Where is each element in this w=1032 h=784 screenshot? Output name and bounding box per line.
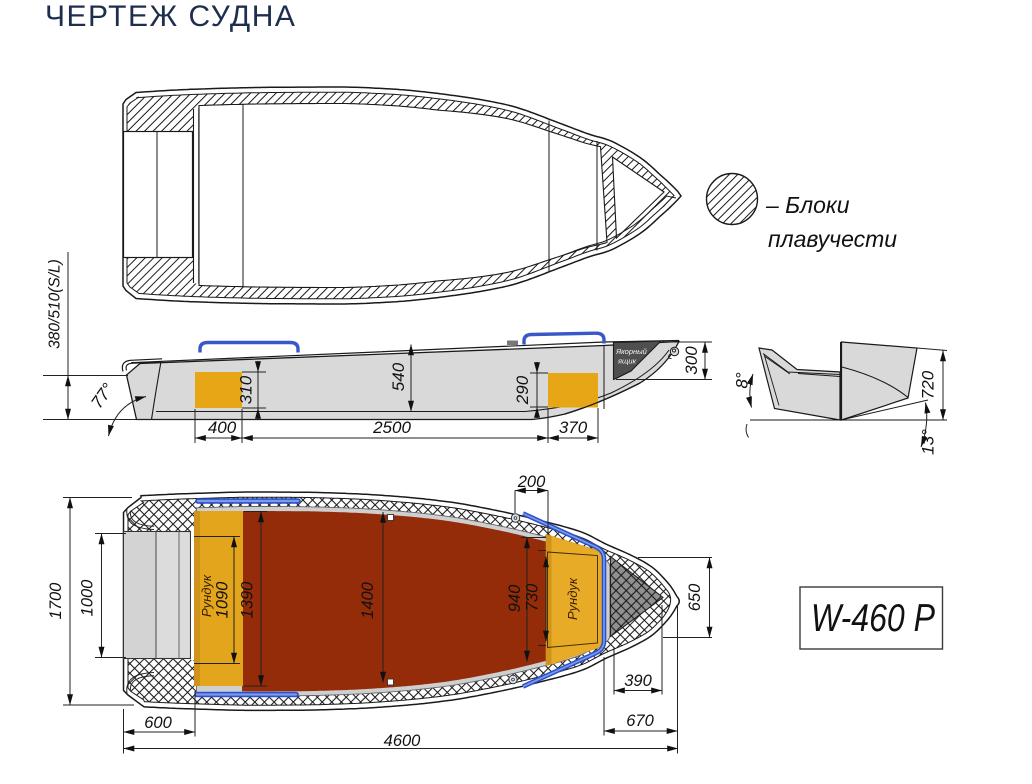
svg-text:4600: 4600 [384,732,422,750]
svg-text:290: 290 [513,375,532,405]
svg-text:77°: 77° [87,380,117,412]
svg-text:670: 670 [626,712,654,730]
svg-text:W-460 P: W-460 P [811,597,935,640]
svg-text:плавучести: плавучести [768,226,897,252]
svg-text:730: 730 [524,583,542,611]
svg-text:380/510(S/L): 380/510(S/L) [47,259,64,349]
svg-text:1000: 1000 [79,579,97,617]
svg-text:300: 300 [682,346,701,375]
svg-text:1400: 1400 [359,581,377,619]
svg-text:ящик: ящик [617,357,637,366]
svg-text:– Блоки: – Блоки [765,192,850,218]
svg-text:13°: 13° [919,429,938,455]
svg-text:200: 200 [517,473,546,491]
svg-text:2500: 2500 [372,418,411,437]
svg-text:8°: 8° [733,372,752,388]
svg-text:650: 650 [686,583,704,611]
svg-text:370: 370 [559,418,588,437]
svg-text:310: 310 [237,375,256,404]
svg-text:390: 390 [624,672,652,690]
svg-text:1390: 1390 [239,581,257,619]
svg-text:Якорный: Якорный [615,347,648,356]
svg-text:940: 940 [506,584,524,612]
svg-text:1700: 1700 [47,582,65,620]
svg-text:720: 720 [919,370,938,399]
svg-text:Рундук: Рундук [199,574,214,617]
svg-text:Рундук: Рундук [565,577,580,620]
svg-text:540: 540 [389,362,408,391]
svg-text:1090: 1090 [214,581,232,619]
svg-text:600: 600 [144,714,172,732]
svg-text:400: 400 [208,418,237,437]
